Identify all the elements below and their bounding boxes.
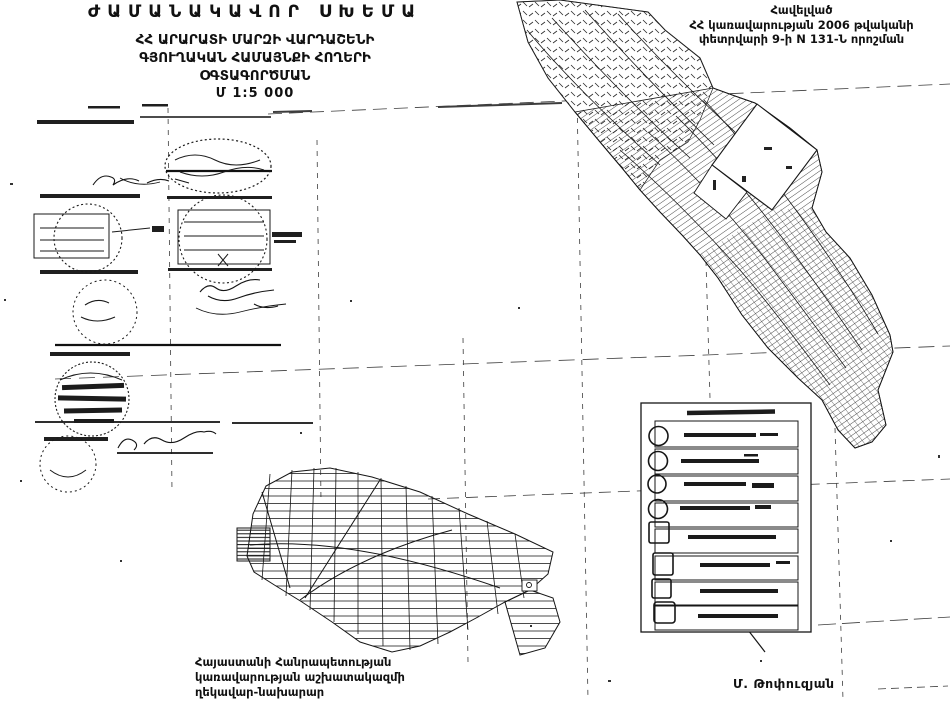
annex-note: Հավելված ՀՀ կառավարության 2006 թվականի փ… [652,3,951,47]
south-map-small-parcel [522,580,537,591]
round-seal-stamp [55,362,129,436]
annex-note-line-2: ՀՀ կառավարության 2006 թվականի [652,18,951,33]
south-map-appendage [505,590,560,655]
approval-signature-block: Հայաստանի Հանրապետության կառավարության ա… [195,655,405,700]
annex-note-line-3: փետրվարի 9-ի N 131-Ն որոշման [652,32,951,47]
document-title: ԺԱՄԱՆԱԿԱՎՈՐ ՍԽԵՄԱ [40,2,470,22]
approval-line-1: Հայաստանի Հանրապետության [195,655,405,670]
legend-box [641,403,811,632]
round-seal-stamp [34,204,164,272]
approval-line-2: կառավարության աշխատակազմի [195,670,405,685]
document-subtitle-line-3: ՕԳՏԱԳՈՐԾՄԱՆ [40,67,470,85]
document-subtitle-line-2: ԳՅՈՒՂԱԿԱՆ ՀԱՄԱՅՆՔԻ ՀՈՂԵՐԻ [40,49,470,67]
document-title-block: ԺԱՄԱՆԱԿԱՎՈՐ ՍԽԵՄԱ ՀՀ ԱՐԱՐԱՏԻ ՄԱՐԶԻ ՎԱՐԴԱ… [40,2,470,101]
document-subtitle-line-1: ՀՀ ԱՐԱՐԱՏԻ ՄԱՐԶԻ ՎԱՐԴԱՇԵՆԻ [40,31,470,49]
round-seal-stamp [40,436,96,492]
round-seal-stamp [165,139,271,193]
map-scale-label: Մ 1:5 000 [40,86,470,101]
signature-seal-table [34,104,313,492]
signatory-name: Մ. Թոփուզյան [733,676,835,691]
scanned-map-document: ԺԱՄԱՆԱԿԱՎՈՐ ՍԽԵՄԱ ՀՀ ԱՐԱՐԱՏԻ ՄԱՐԶԻ ՎԱՐԴԱ… [0,0,951,702]
round-seal-stamp [73,280,137,344]
map-graphics-layer [0,0,951,702]
approval-line-3: ղեկավար-նախարար [195,685,405,700]
south-map-tick [748,630,765,652]
north-land-map [517,0,893,448]
annex-note-line-1: Հավելված [652,3,951,18]
